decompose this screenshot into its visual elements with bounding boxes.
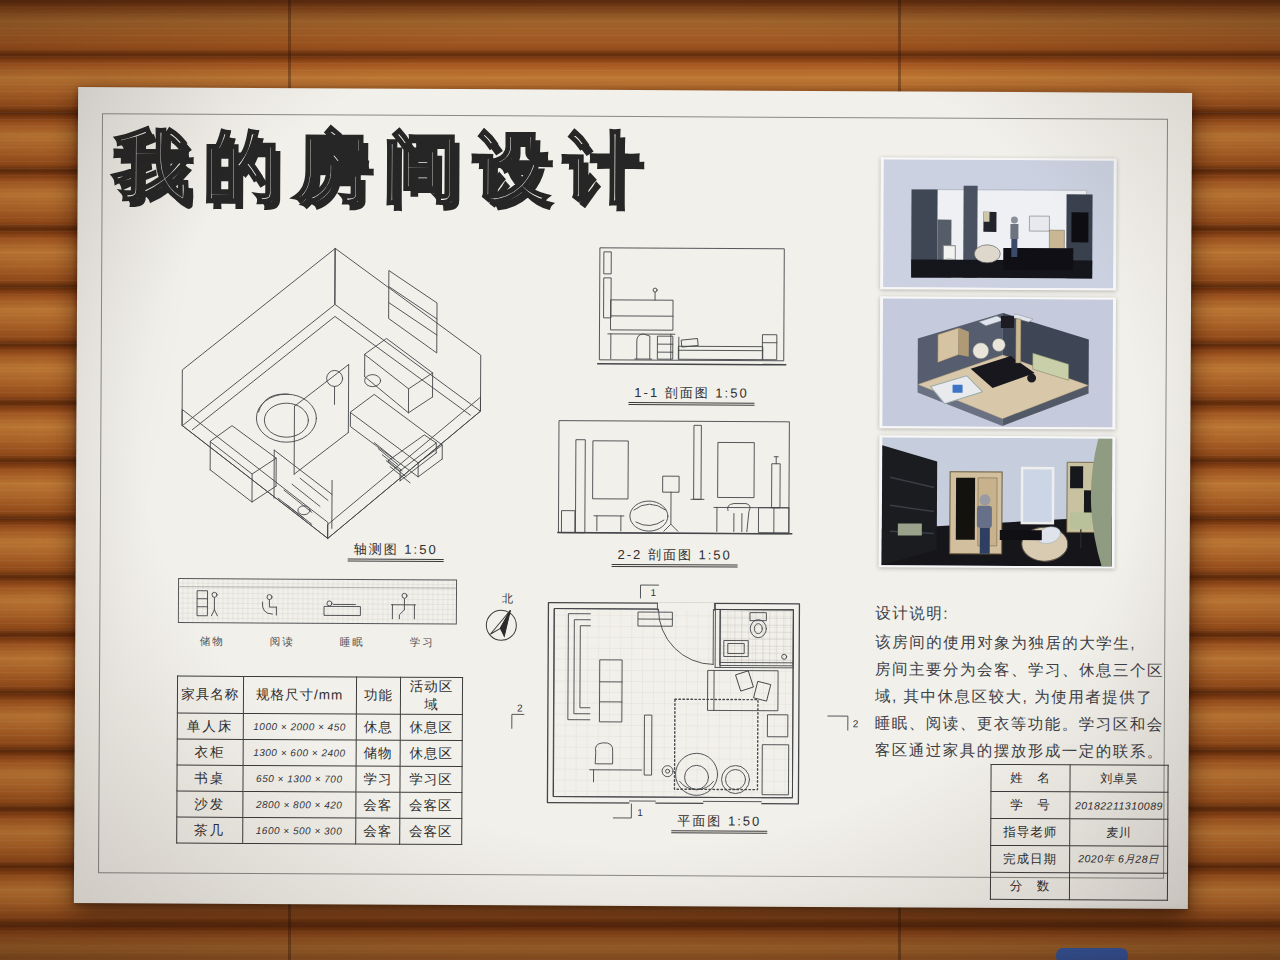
table-cell: 2800 × 800 × 420 — [242, 791, 355, 818]
title-block: 姓 名 刘卓昊 学 号 20182211310089 指导老师 麦川 完成日期 … — [990, 764, 1169, 901]
table-cell: 休息区 — [400, 714, 462, 740]
axonometric-drawing — [136, 245, 506, 545]
section-marker-2-left: 2 — [517, 702, 523, 713]
table-cell: 学习区 — [400, 766, 462, 792]
title-block-row: 姓 名 刘卓昊 — [991, 764, 1168, 792]
axon-caption: 轴测图 1:50 — [296, 540, 496, 559]
table-cell: 储物 — [356, 740, 400, 766]
title-block-row: 学 号 20182211310089 — [991, 791, 1168, 819]
table-cell: 单人床 — [177, 713, 243, 739]
design-poster-sheet: 我的房间设计 — [74, 87, 1192, 909]
furniture-table: 家具名称 规格尺寸/mm 功能 活动区域 单人床 1000 × 2000 × 4… — [176, 676, 463, 845]
title-block-value: 20182211310089 — [1070, 792, 1168, 820]
table-row: 书桌 650 × 1300 × 700 学习 学习区 — [177, 765, 462, 792]
table-cell: 650 × 1300 × 700 — [243, 765, 356, 792]
table-header: 家具名称 — [177, 676, 243, 713]
design-description: 设计说明: 该房间的使用对象为独居的大学生, 房间主要分为会客、学习、休息三个区… — [875, 599, 1170, 765]
description-line: 房间主要分为会客、学习、休息三个区 — [875, 655, 1169, 684]
table-cell: 1600 × 500 × 300 — [242, 817, 355, 844]
table-row: 沙发 2800 × 800 × 420 会客 会客区 — [177, 791, 462, 818]
title-block-label: 分 数 — [990, 872, 1069, 899]
title-block-value — [1069, 873, 1167, 901]
title-block-row: 指导老师 麦川 — [991, 818, 1168, 846]
interior-perspective-render — [879, 435, 1116, 568]
table-cell: 学习 — [356, 766, 400, 792]
table-cell: 会客区 — [400, 818, 462, 844]
description-line: 域, 其中休息区较大, 为使用者提供了 — [875, 682, 1169, 711]
table-row: 单人床 1000 × 2000 × 450 休息 休息区 — [177, 713, 462, 740]
section-marker-2-right: 2 — [853, 718, 859, 729]
title-block-label: 指导老师 — [991, 818, 1070, 845]
activity-elevation-strip — [177, 578, 457, 631]
description-heading: 设计说明: — [875, 599, 1169, 628]
strip-label: 储物 — [200, 635, 225, 649]
table-cell: 1300 × 600 × 2400 — [243, 739, 356, 766]
table-cell: 会客 — [356, 792, 400, 818]
title-block-label: 完成日期 — [991, 845, 1070, 872]
table-cell: 衣柜 — [177, 739, 243, 765]
table-cell: 会客 — [356, 818, 400, 844]
section-perspective-render — [880, 157, 1117, 290]
title-block-label: 学 号 — [991, 791, 1070, 818]
title-block-value: 2020年 6月28日 — [1070, 846, 1168, 874]
table-row: 衣柜 1300 × 600 × 2400 储物 休息区 — [177, 739, 462, 766]
table-cell: 会客区 — [400, 792, 462, 818]
strip-label: 睡眠 — [340, 635, 365, 649]
strip-label: 阅读 — [270, 635, 295, 649]
description-line: 该房间的使用对象为独居的大学生, — [875, 628, 1169, 657]
title-block-value: 刘卓昊 — [1070, 765, 1168, 793]
table-cell: 茶几 — [177, 817, 243, 843]
poster-title: 我的房间设计 — [114, 123, 794, 210]
title-block-row: 分 数 — [990, 872, 1167, 900]
table-cell: 书桌 — [177, 765, 243, 791]
activity-strip-labels: 储物 阅读 睡眠 学习 — [177, 635, 457, 650]
section-1-1-drawing — [595, 242, 790, 379]
table-cell: 休息 — [356, 714, 400, 740]
table-header: 活动区域 — [400, 677, 462, 714]
top-axonometric-render — [879, 296, 1116, 429]
table-cell: 1000 × 2000 × 450 — [243, 713, 356, 740]
plan-caption: 平面图 1:50 — [634, 812, 804, 831]
table-header-row: 家具名称 规格尺寸/mm 功能 活动区域 — [177, 676, 462, 714]
table-header: 规格尺寸/mm — [243, 676, 357, 714]
section-2-2-drawing — [556, 418, 795, 541]
strip-label: 学习 — [410, 636, 435, 650]
table-cell: 休息区 — [400, 740, 462, 766]
table-header: 功能 — [356, 677, 400, 714]
title-block-value: 麦川 — [1070, 819, 1168, 847]
title-block-row: 完成日期 2020年 6月28日 — [991, 845, 1168, 873]
blue-clip-edge — [1056, 948, 1128, 960]
floor-plan-drawing: 1 1 2 2 — [509, 581, 862, 821]
table-cell: 沙发 — [177, 791, 243, 817]
description-line: 睡眠、阅读、更衣等功能。学习区和会 — [875, 709, 1169, 738]
title-block-label: 姓 名 — [991, 764, 1070, 791]
section-1-1-caption: 1-1 剖面图 1:50 — [595, 384, 789, 403]
description-line: 客区通过家具的摆放形成一定的联系。 — [875, 736, 1169, 765]
table-row: 茶几 1600 × 500 × 300 会客 会客区 — [177, 817, 462, 844]
section-2-2-caption: 2-2 剖面图 1:50 — [556, 546, 794, 565]
section-marker-1-top: 1 — [650, 587, 656, 598]
